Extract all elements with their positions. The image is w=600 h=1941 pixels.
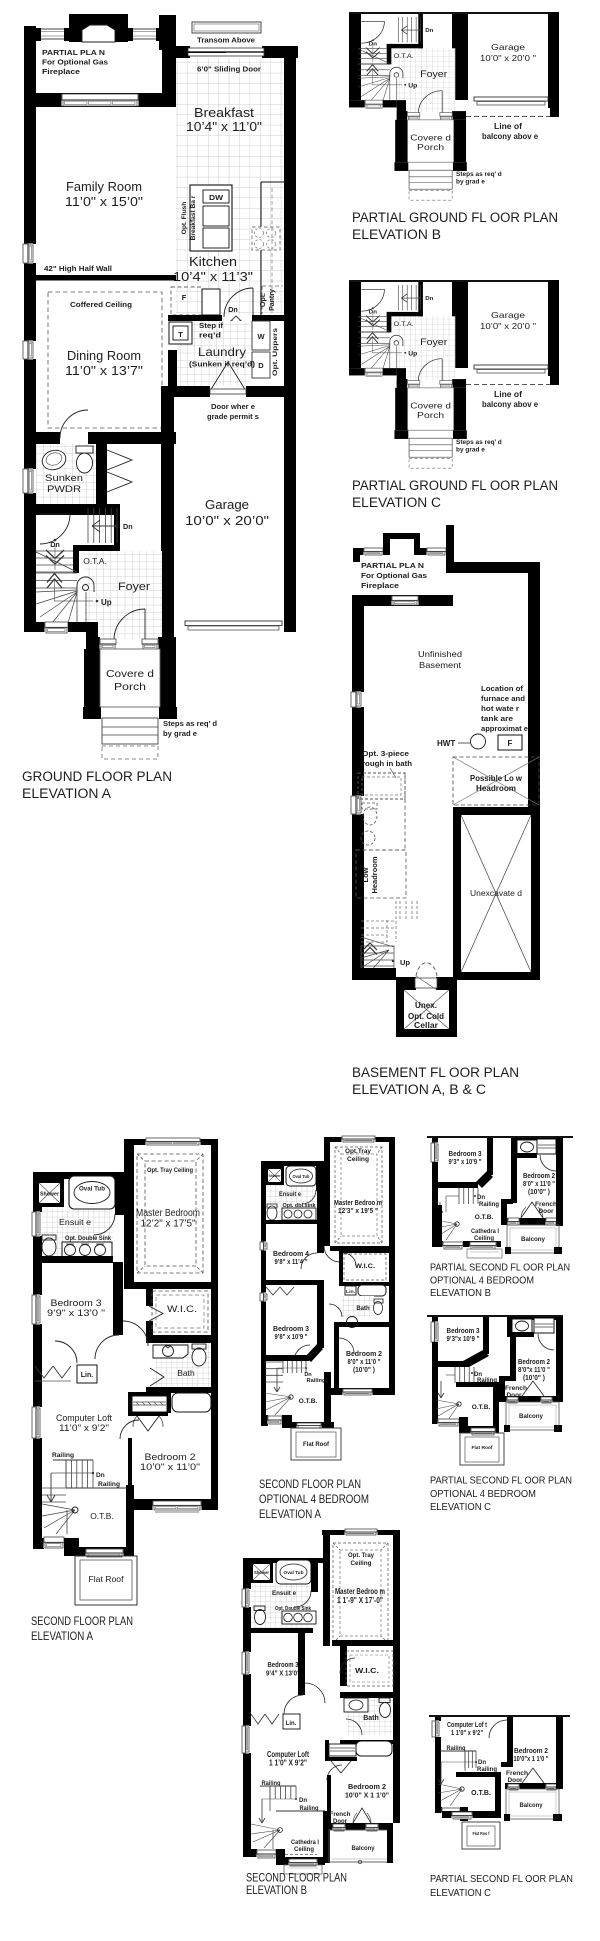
svg-text:Oval Tub: Oval Tub <box>293 1174 310 1179</box>
svg-text:Steps as req’ d: Steps as req’ d <box>163 719 217 728</box>
svg-text:ELEVATION C: ELEVATION C <box>352 495 441 510</box>
svg-text:Oval Tub: Oval Tub <box>284 1570 304 1576</box>
svg-text:Balcony: Balcony <box>352 1845 375 1852</box>
svg-text:Breakfast: Breakfast <box>194 106 255 120</box>
svg-text:Opt. Flush: Opt. Flush <box>181 202 188 235</box>
svg-text:Up: Up <box>101 598 112 607</box>
svg-text:W.I.C.: W.I.C. <box>167 1304 197 1314</box>
svg-text:Location of: Location of <box>481 684 524 693</box>
svg-text:by grad e: by grad e <box>456 178 485 185</box>
svg-text:W.I.C.: W.I.C. <box>355 1668 379 1675</box>
svg-text:W: W <box>257 332 265 341</box>
svg-text:O.T.B.: O.T.B. <box>299 1398 318 1405</box>
svg-text:1 1’0" x 9’2": 1 1’0" x 9’2" <box>451 1730 483 1737</box>
svg-text:Dn: Dn <box>299 1798 307 1804</box>
svg-text:Bedroom 3: Bedroom 3 <box>449 1151 482 1158</box>
svg-text:Dn: Dn <box>477 1195 485 1201</box>
svg-text:PARTIAL SECOND FL OOR PLAN: PARTIAL SECOND FL OOR PLAN <box>430 1262 570 1274</box>
svg-text:Up: Up <box>408 83 417 90</box>
svg-text:ELEVATION A: ELEVATION A <box>259 1507 321 1521</box>
svg-text:Ceiling: Ceiling <box>351 1561 372 1567</box>
svg-text:10’0" X 1 1’0": 10’0" X 1 1’0" <box>345 1791 389 1800</box>
svg-text:Lin.: Lin. <box>346 1289 355 1294</box>
svg-text:12’2" x 17’5": 12’2" x 17’5" <box>141 1219 196 1230</box>
svg-text:Master Bedroo m: Master Bedroo m <box>335 1587 385 1596</box>
svg-text:BASEMENT FL OOR PLAN: BASEMENT FL OOR PLAN <box>352 1065 519 1080</box>
svg-text:O.T.B.: O.T.B. <box>90 1511 114 1521</box>
svg-text:Flat Roof: Flat Roof <box>303 1441 330 1448</box>
svg-text:(10’0" ): (10’0" ) <box>528 1189 550 1196</box>
svg-text:Opt.Tray: Opt.Tray <box>345 1149 372 1155</box>
svg-text:9’4" X 13’0": 9’4" X 13’0" <box>266 1669 300 1678</box>
svg-text:ELEVATION C: ELEVATION C <box>430 1887 491 1899</box>
svg-text:hot wate r: hot wate r <box>481 704 519 713</box>
svg-text:Line of: Line of <box>494 390 522 399</box>
svg-text:French: French <box>330 1811 351 1818</box>
svg-text:O.T.B.: O.T.B. <box>475 1214 494 1221</box>
svg-text:Opt. Uppers: Opt. Uppers <box>272 328 279 376</box>
svg-text:10’0"x 1 1’0 ": 10’0"x 1 1’0 " <box>514 1756 549 1763</box>
svg-text:Up: Up <box>400 958 410 967</box>
svg-text:French: French <box>506 1770 528 1777</box>
svg-text:10’4" x 11’0": 10’4" x 11’0" <box>186 120 262 134</box>
svg-text:11’0" x 9’2": 11’0" x 9’2" <box>59 1423 109 1434</box>
svg-text:Transom Above: Transom Above <box>197 36 255 45</box>
svg-text:Railing: Railing <box>300 1806 319 1812</box>
svg-text:10’0" x 20’0": 10’0" x 20’0" <box>185 514 269 528</box>
svg-text:Door wher e: Door wher e <box>211 402 255 411</box>
svg-text:(10’0" ): (10’0" ) <box>523 1375 545 1382</box>
svg-text:Steps as req’ d: Steps as req’ d <box>456 439 502 446</box>
svg-text:Step if: Step if <box>199 321 224 330</box>
svg-text:approximat e: approximat e <box>481 724 528 733</box>
svg-text:F: F <box>508 739 513 748</box>
svg-text:For Optional Gas: For Optional Gas <box>361 571 427 580</box>
svg-text:10’4" x 11’3": 10’4" x 11’3" <box>173 270 253 284</box>
svg-text:10’0" x 20’0 ": 10’0" x 20’0 " <box>480 321 536 331</box>
svg-text:furnace and: furnace and <box>481 694 525 703</box>
svg-text:9’8" x 10’9 ": 9’8" x 10’9 " <box>275 1334 308 1341</box>
svg-text:Covere d: Covere d <box>106 668 154 680</box>
svg-text:T: T <box>178 330 183 339</box>
svg-text:42" High Half Wall: 42" High Half Wall <box>44 264 112 273</box>
svg-text:Possible Lo w: Possible Lo w <box>470 774 523 783</box>
svg-text:Dn: Dn <box>425 28 434 34</box>
svg-text:9’3"x 10’9 ": 9’3"x 10’9 " <box>447 1336 480 1343</box>
svg-text:SECOND FLOOR PLAN: SECOND FLOOR PLAN <box>259 1477 361 1491</box>
svg-text:by grad e: by grad e <box>456 446 485 453</box>
svg-text:10’0" x 20’0 ": 10’0" x 20’0 " <box>480 53 536 63</box>
svg-text:Coffered Ceiling: Coffered Ceiling <box>70 300 132 309</box>
svg-text:6’0" Sliding Door: 6’0" Sliding Door <box>197 65 261 74</box>
svg-text:Balcony: Balcony <box>520 1802 543 1809</box>
svg-text:ELEVATION A, B & C: ELEVATION A, B & C <box>352 1082 486 1097</box>
svg-text:Up: Up <box>408 351 417 358</box>
svg-text:Opt. Tray Ceiling: Opt. Tray Ceiling <box>147 1167 193 1174</box>
svg-text:Shower: Shower <box>40 1192 59 1198</box>
svg-text:Garage: Garage <box>491 42 525 52</box>
svg-text:Porch: Porch <box>417 142 444 152</box>
svg-text:O.T.A.: O.T.A. <box>394 53 414 60</box>
svg-text:DW: DW <box>209 195 223 202</box>
svg-text:Bedroom 3: Bedroom 3 <box>447 1328 480 1335</box>
svg-text:Flat Roof: Flat Roof <box>89 1574 125 1584</box>
svg-text:Sunken: Sunken <box>45 473 83 484</box>
svg-text:OPTIONAL 4 BEDROOM: OPTIONAL 4 BEDROOM <box>430 1488 536 1500</box>
svg-text:Opt. Tray: Opt. Tray <box>348 1553 375 1559</box>
svg-text:12’3" x 19’5 ": 12’3" x 19’5 " <box>338 1208 378 1215</box>
svg-text:Foyer: Foyer <box>118 581 150 593</box>
svg-text:Railing: Railing <box>479 1202 499 1208</box>
svg-text:Garage: Garage <box>491 310 525 320</box>
svg-text:Flat Roo f: Flat Roo f <box>473 1831 491 1836</box>
svg-text:9’9" x 13’0 ": 9’9" x 13’0 " <box>47 1308 105 1319</box>
svg-text:Covere d: Covere d <box>410 133 451 143</box>
svg-text:Railing: Railing <box>98 1481 120 1488</box>
svg-text:Opt. Double Sink: Opt. Double Sink <box>65 1236 112 1242</box>
svg-text:Porch: Porch <box>417 410 444 420</box>
svg-text:Kitchen: Kitchen <box>189 255 237 269</box>
svg-text:rough in bath: rough in bath <box>362 759 412 768</box>
svg-text:Opt.: Opt. <box>260 293 267 307</box>
svg-text:PARTIAL PLA N: PARTIAL PLA N <box>361 561 424 570</box>
svg-text:O.T.B.: O.T.B. <box>471 1790 491 1797</box>
svg-text:Door: Door <box>508 1777 523 1784</box>
svg-text:Covere d: Covere d <box>410 401 451 411</box>
svg-text:balcony abov e: balcony abov e <box>482 132 539 141</box>
svg-text:Railing: Railing <box>52 1452 74 1459</box>
svg-text:Unfinished: Unfinished <box>418 649 462 659</box>
svg-text:1 1’-9" X 17’-0": 1 1’-9" X 17’-0" <box>337 1596 383 1605</box>
svg-text:Balcony: Balcony <box>521 1236 545 1243</box>
svg-text:Shower: Shower <box>269 1174 281 1178</box>
svg-text:F: F <box>182 293 187 302</box>
svg-text:Basement: Basement <box>419 660 462 670</box>
svg-text:balcony abov e: balcony abov e <box>482 400 539 409</box>
svg-text:grade permit s: grade permit s <box>207 412 259 421</box>
svg-text:PARTIAL SECOND FL OOR PLAN: PARTIAL SECOND FL OOR PLAN <box>430 1475 572 1487</box>
svg-text:Low: Low <box>361 867 370 882</box>
svg-text:Master Bedroom: Master Bedroom <box>136 1208 200 1219</box>
svg-text:Foyer: Foyer <box>420 69 447 79</box>
svg-text:SECOND FLOOR PLAN: SECOND FLOOR PLAN <box>31 1614 133 1628</box>
svg-text:(Sunken if req’d): (Sunken if req’d) <box>189 360 256 369</box>
svg-text:O.T.B.: O.T.B. <box>472 1404 491 1411</box>
svg-text:ELEVATION B: ELEVATION B <box>246 1883 307 1897</box>
svg-text:Unex.: Unex. <box>415 1001 437 1010</box>
svg-text:Porch: Porch <box>114 681 146 693</box>
svg-text:1 1’0" X 9’2": 1 1’0" X 9’2" <box>269 1759 307 1768</box>
svg-text:Bath: Bath <box>363 1715 379 1722</box>
svg-text:8’0" x 11’0 ": 8’0" x 11’0 " <box>523 1181 555 1188</box>
svg-text:Bedroom 2: Bedroom 2 <box>518 1359 550 1366</box>
svg-text:8’0" x 11’0 ": 8’0" x 11’0 " <box>348 1359 381 1366</box>
svg-text:tank are: tank are <box>481 714 513 723</box>
svg-text:For Optional Gas: For Optional Gas <box>42 58 108 67</box>
svg-text:Ensuit e: Ensuit e <box>279 1192 302 1198</box>
svg-text:W.I.C.: W.I.C. <box>355 1264 375 1270</box>
svg-text:Laundry: Laundry <box>198 345 246 359</box>
svg-text:Bedroom 2: Bedroom 2 <box>514 1748 548 1755</box>
svg-text:O.T.A.: O.T.A. <box>83 556 107 566</box>
svg-text:Opt. Cold: Opt. Cold <box>408 1012 444 1021</box>
svg-text:PWDR: PWDR <box>47 484 81 495</box>
svg-text:Ceiling: Ceiling <box>294 1846 314 1853</box>
svg-text:9’3" x 10’9 ": 9’3" x 10’9 " <box>449 1159 482 1166</box>
svg-text:Lin.: Lin. <box>81 1372 93 1379</box>
svg-text:Dn: Dn <box>228 305 238 314</box>
svg-text:GROUND FLOOR PLAN: GROUND FLOOR PLAN <box>22 769 172 784</box>
svg-text:Flat Roof: Flat Roof <box>472 1445 493 1451</box>
svg-text:Oval Tub: Oval Tub <box>79 1187 105 1193</box>
svg-text:Dn: Dn <box>96 1472 105 1479</box>
svg-text:Dn: Dn <box>478 1760 486 1766</box>
svg-text:Bath: Bath <box>177 1368 195 1378</box>
svg-text:Cathedra l: Cathedra l <box>291 1839 319 1846</box>
svg-text:11’0" x 13’7": 11’0" x 13’7" <box>65 364 143 378</box>
svg-text:PARTIAL GROUND FL OOR PLAN: PARTIAL GROUND FL OOR PLAN <box>352 478 558 493</box>
svg-text:PARTIAL GROUND FL OOR PLAN: PARTIAL GROUND FL OOR PLAN <box>352 210 558 225</box>
svg-text:Bath: Bath <box>356 1306 370 1312</box>
svg-text:ELEVATION C: ELEVATION C <box>430 1501 491 1513</box>
svg-text:Ensuit e: Ensuit e <box>59 1217 91 1227</box>
svg-text:Shower: Shower <box>254 1570 269 1575</box>
svg-text:Steps as req’ d: Steps as req’ d <box>456 171 502 178</box>
svg-text:Computer Lof t: Computer Lof t <box>447 1722 488 1729</box>
svg-text:Family Room: Family Room <box>66 180 142 194</box>
svg-text:req’d: req’d <box>199 331 221 340</box>
svg-text:Railing: Railing <box>307 1378 326 1384</box>
svg-text:ELEVATION A: ELEVATION A <box>31 1629 93 1643</box>
svg-text:Bedroom 2: Bedroom 2 <box>346 1351 382 1358</box>
svg-text:Breakfast Ba r: Breakfast Ba r <box>190 195 197 240</box>
svg-text:ELEVATION B: ELEVATION B <box>430 1287 491 1299</box>
svg-text:French: French <box>505 1386 527 1392</box>
svg-text:OPTIONAL 4 BEDROOM: OPTIONAL 4 BEDROOM <box>259 1492 369 1506</box>
svg-text:Opt. 3-piece: Opt. 3-piece <box>362 749 409 758</box>
svg-text:Fireplace: Fireplace <box>42 67 80 76</box>
svg-text:Cathedra l: Cathedra l <box>471 1229 499 1235</box>
svg-text:Headroom: Headroom <box>370 856 379 893</box>
svg-text:Unexcavate d: Unexcavate d <box>470 888 522 898</box>
svg-text:Lin.: Lin. <box>286 1721 297 1727</box>
svg-text:Dn: Dn <box>425 296 434 302</box>
svg-text:10’0" x 11’0": 10’0" x 11’0" <box>140 1462 200 1473</box>
svg-text:OPTIONAL 4 BEDROOM: OPTIONAL 4 BEDROOM <box>430 1275 534 1287</box>
svg-text:Master Bedroo m: Master Bedroo m <box>334 1200 382 1207</box>
svg-text:Balcony: Balcony <box>519 1413 543 1420</box>
svg-text:Bedroom 4: Bedroom 4 <box>273 1251 309 1258</box>
svg-text:Bedroom 2: Bedroom 2 <box>523 1173 555 1180</box>
svg-text:Cellar: Cellar <box>414 1021 438 1030</box>
svg-text:by grad e: by grad e <box>163 729 197 738</box>
svg-text:ELEVATION B: ELEVATION B <box>352 227 441 242</box>
svg-text:ELEVATION A: ELEVATION A <box>22 786 111 801</box>
svg-text:HWT: HWT <box>437 739 455 748</box>
svg-text:Garage: Garage <box>205 498 249 512</box>
svg-text:PARTIAL PLA N: PARTIAL PLA N <box>42 48 105 57</box>
svg-text:Pantry: Pantry <box>269 289 276 311</box>
svg-text:Foyer: Foyer <box>420 337 447 347</box>
svg-text:Fireplace: Fireplace <box>361 581 399 590</box>
svg-text:Ensuit e: Ensuit e <box>272 1590 296 1597</box>
svg-text:Ceiling: Ceiling <box>347 1157 369 1163</box>
svg-text:11’0" x 15’0": 11’0" x 15’0" <box>65 195 143 209</box>
svg-text:Dining Room: Dining Room <box>67 349 141 363</box>
svg-text:Headroom: Headroom <box>476 784 516 793</box>
svg-text:Dn: Dn <box>123 522 133 531</box>
svg-text:Line of: Line of <box>494 122 522 131</box>
svg-text:O.T.A.: O.T.A. <box>394 321 414 328</box>
svg-text:PARTIAL SECOND FL OOR PLAN: PARTIAL SECOND FL OOR PLAN <box>430 1873 573 1885</box>
svg-text:(10’0" ): (10’0" ) <box>353 1367 375 1374</box>
svg-text:Bedroom 3: Bedroom 3 <box>273 1326 309 1333</box>
svg-text:8’0"x 11’0 ": 8’0"x 11’0 " <box>518 1367 550 1374</box>
svg-text:D: D <box>258 361 264 370</box>
